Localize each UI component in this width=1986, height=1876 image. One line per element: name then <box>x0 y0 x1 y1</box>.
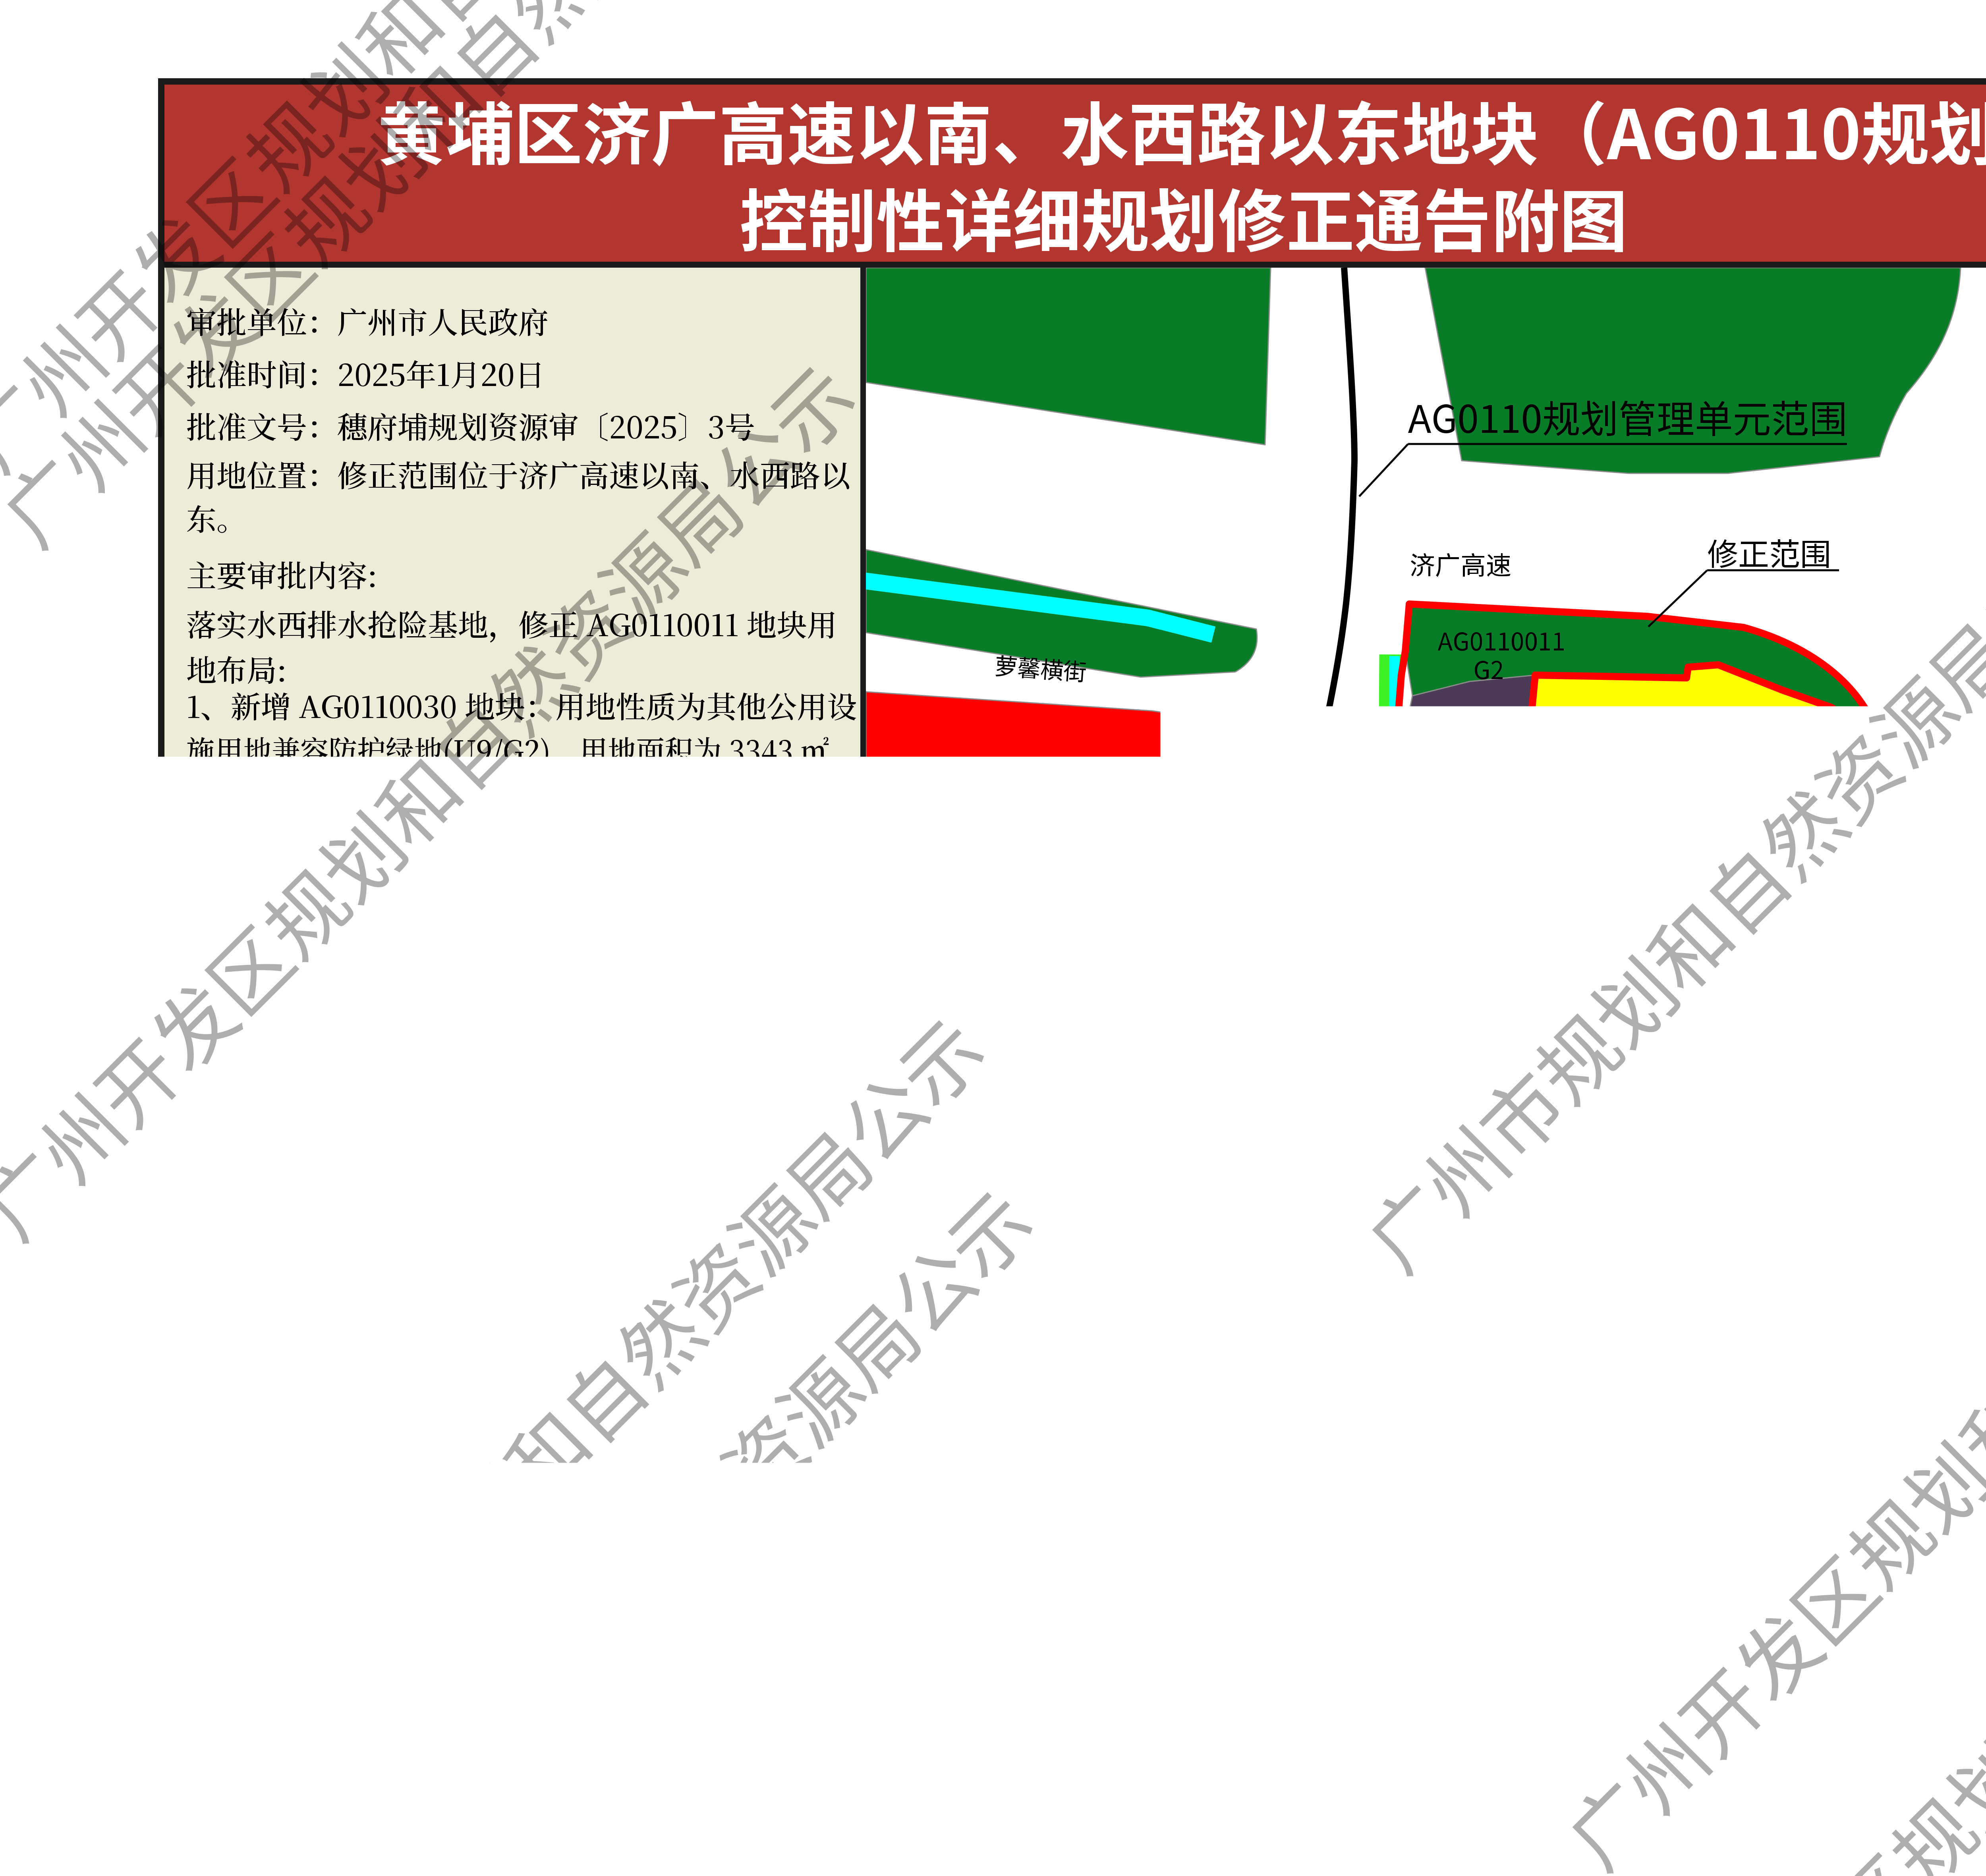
svg-text:0: 0 <box>1642 1712 1652 1733</box>
svg-text:AG0110: AG0110 <box>1679 1359 1830 1406</box>
svg-text:100m: 100m <box>1819 1712 1867 1733</box>
svg-text:http://www.hp.gov.cn/gzjg/qzfg: http://www.hp.gov.cn/gzjg/qzfgwhgzbm/qgh… <box>240 1761 840 1780</box>
